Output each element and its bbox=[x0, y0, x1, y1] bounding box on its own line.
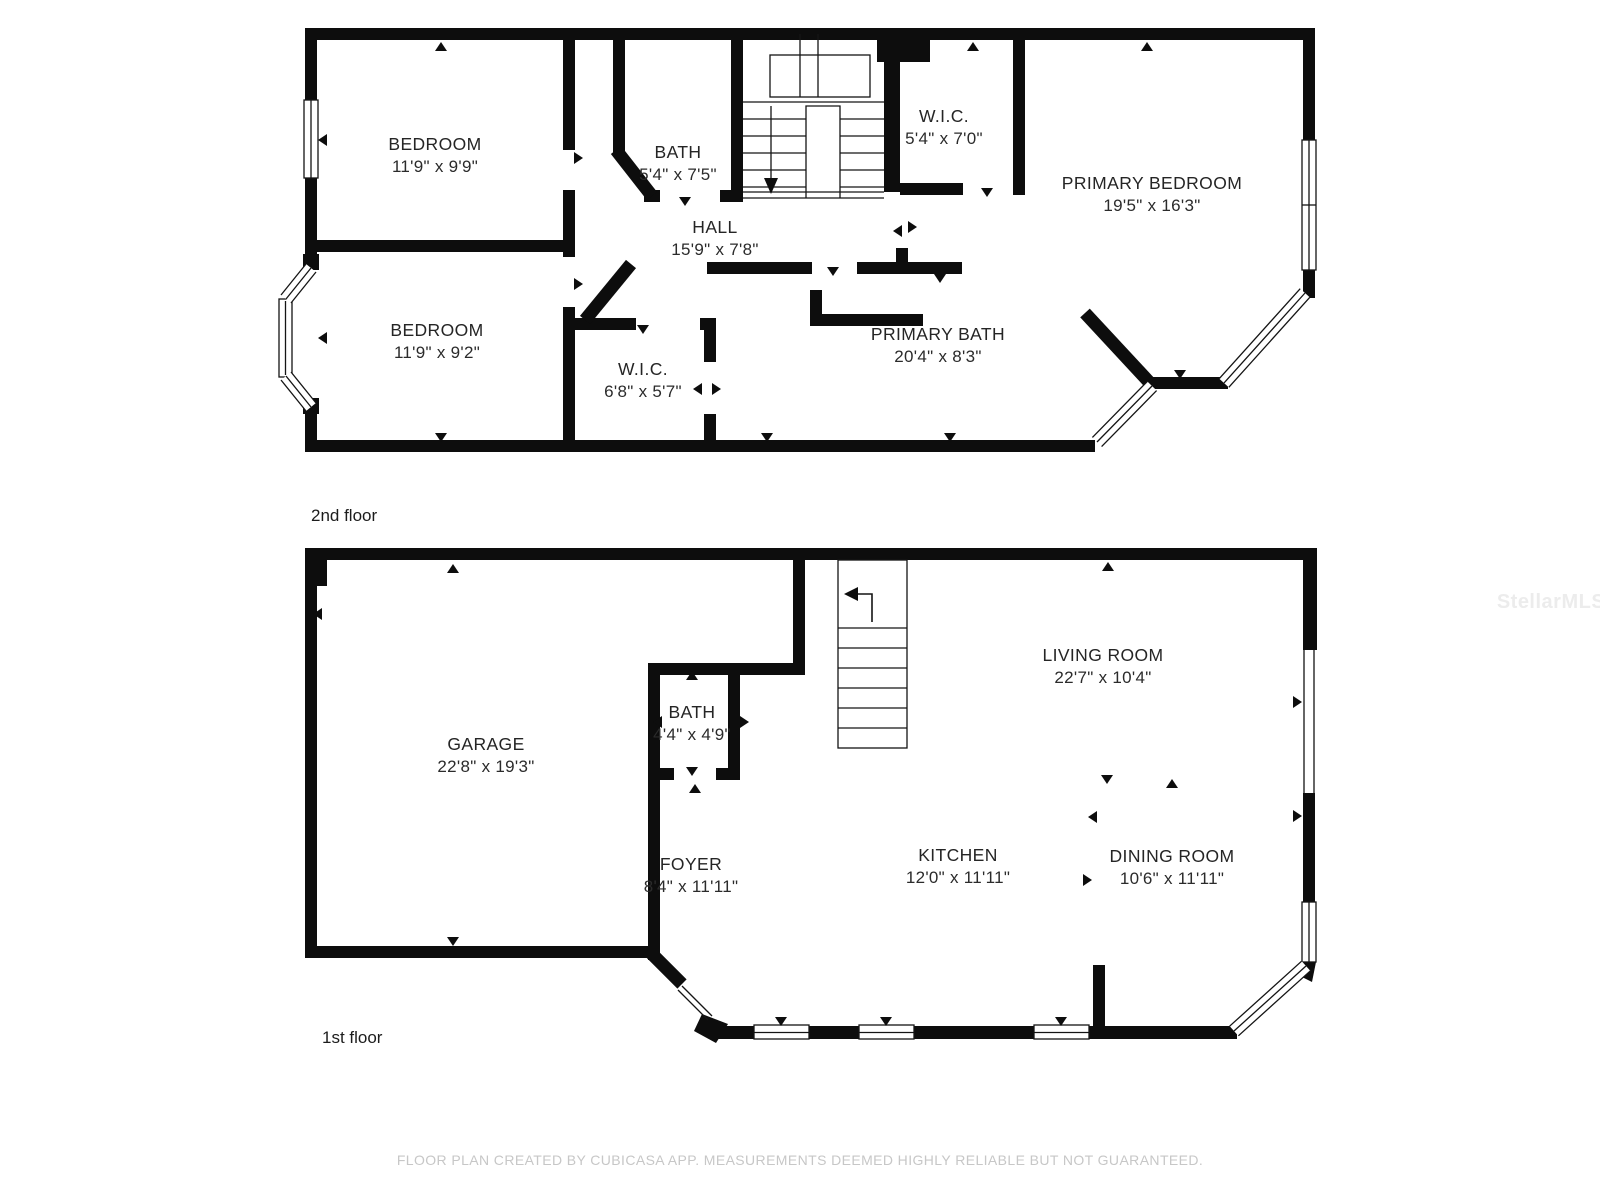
door-direction-marker bbox=[1083, 874, 1092, 886]
door-direction-marker bbox=[447, 937, 459, 946]
door-direction-marker bbox=[934, 274, 946, 283]
room-label-bath1-name: BATH bbox=[669, 702, 716, 722]
first-floor-stairs bbox=[838, 560, 907, 748]
door-direction-marker bbox=[318, 134, 327, 146]
first-floor-plan: GARAGE 22'8" x 19'3" BATH 4'4" x 4'9" LI… bbox=[305, 548, 1317, 1047]
door-direction-marker bbox=[574, 278, 583, 290]
room-label-living-room-name: LIVING ROOM bbox=[1042, 645, 1163, 665]
door-direction-marker bbox=[967, 42, 979, 51]
door-direction-marker bbox=[893, 225, 902, 237]
door-direction-marker bbox=[1293, 810, 1302, 822]
room-label-garage-name: GARAGE bbox=[447, 734, 524, 754]
room-label-dining-room-name: DINING ROOM bbox=[1110, 846, 1235, 866]
room-label-kitchen-dims: 12'0" x 11'11" bbox=[906, 868, 1010, 887]
second-floor-walls bbox=[303, 28, 1315, 452]
door-direction-marker bbox=[981, 188, 993, 197]
room-label-primary-bath-name: PRIMARY BATH bbox=[871, 324, 1005, 344]
room-label-bedroom2-dims: 11'9" x 9'2" bbox=[394, 343, 480, 362]
room-label-wic1-dims: 5'4" x 7'0" bbox=[905, 129, 983, 148]
room-label-bedroom2-name: BEDROOM bbox=[390, 320, 483, 340]
second-floor-label: 2nd floor bbox=[311, 506, 377, 525]
room-label-bath1-dims: 4'4" x 4'9" bbox=[653, 725, 731, 744]
door-direction-marker bbox=[637, 325, 649, 334]
room-label-wic1-name: W.I.C. bbox=[919, 106, 969, 126]
floor-plan-page: BEDROOM 11'9" x 9'9" BATH 5'4" x 7'5" W.… bbox=[0, 0, 1600, 1200]
room-label-primary-bath-dims: 20'4" x 8'3" bbox=[894, 347, 981, 366]
room-label-bath2-dims: 5'4" x 7'5" bbox=[639, 165, 717, 184]
first-floor-walls bbox=[305, 548, 1317, 1043]
door-direction-marker bbox=[1141, 42, 1153, 51]
stairs-up-arrow bbox=[844, 587, 858, 601]
room-label-kitchen-name: KITCHEN bbox=[918, 845, 998, 865]
door-direction-marker bbox=[318, 332, 327, 344]
second-floor-plan: BEDROOM 11'9" x 9'9" BATH 5'4" x 7'5" W.… bbox=[279, 28, 1316, 525]
sliding-door-opening bbox=[1303, 650, 1315, 793]
room-label-wic2-dims: 6'8" x 5'7" bbox=[604, 382, 682, 401]
door-direction-marker bbox=[574, 152, 583, 164]
room-label-bedroom1-name: BEDROOM bbox=[388, 134, 481, 154]
door-direction-marker bbox=[686, 767, 698, 776]
room-label-primary-bedroom-name: PRIMARY BEDROOM bbox=[1062, 173, 1242, 193]
footer-disclaimer: FLOOR PLAN CREATED BY CUBICASA APP. MEAS… bbox=[397, 1152, 1203, 1168]
room-label-foyer-dims: 8'4" x 11'11" bbox=[644, 877, 739, 896]
first-floor-label: 1st floor bbox=[322, 1028, 383, 1047]
door-direction-marker bbox=[435, 42, 447, 51]
room-label-dining-room-dims: 10'6" x 11'11" bbox=[1120, 869, 1224, 888]
room-label-hall-dims: 15'9" x 7'8" bbox=[671, 240, 758, 259]
first-floor-room-labels: GARAGE 22'8" x 19'3" BATH 4'4" x 4'9" LI… bbox=[437, 645, 1234, 896]
room-label-garage-dims: 22'8" x 19'3" bbox=[437, 757, 534, 776]
stellar-mls-watermark: StellarMLS bbox=[1497, 591, 1600, 613]
door-direction-marker bbox=[908, 221, 917, 233]
door-direction-marker bbox=[1166, 779, 1178, 788]
room-label-hall-name: HALL bbox=[692, 217, 737, 237]
room-label-foyer-name: FOYER bbox=[660, 854, 722, 874]
entry-door-leaf bbox=[682, 986, 712, 1016]
door-direction-marker bbox=[1088, 811, 1097, 823]
floor-plan-drawing: BEDROOM 11'9" x 9'9" BATH 5'4" x 7'5" W.… bbox=[0, 0, 1600, 1200]
door-direction-marker bbox=[827, 267, 839, 276]
door-direction-marker bbox=[447, 564, 459, 573]
door-direction-marker bbox=[1101, 775, 1113, 784]
room-label-bedroom1-dims: 11'9" x 9'9" bbox=[392, 157, 478, 176]
room-label-primary-bedroom-dims: 19'5" x 16'3" bbox=[1103, 196, 1200, 215]
door-direction-marker bbox=[740, 716, 749, 728]
door-direction-marker bbox=[679, 197, 691, 206]
door-direction-marker bbox=[712, 383, 721, 395]
room-label-wic2-name: W.I.C. bbox=[618, 359, 668, 379]
room-label-living-room-dims: 22'7" x 10'4" bbox=[1054, 668, 1151, 687]
door-direction-marker bbox=[693, 383, 702, 395]
door-direction-marker bbox=[1102, 562, 1114, 571]
second-floor-stairs bbox=[743, 34, 884, 198]
room-label-bath2-name: BATH bbox=[655, 142, 702, 162]
door-direction-marker bbox=[1293, 696, 1302, 708]
door-direction-marker bbox=[689, 784, 701, 793]
